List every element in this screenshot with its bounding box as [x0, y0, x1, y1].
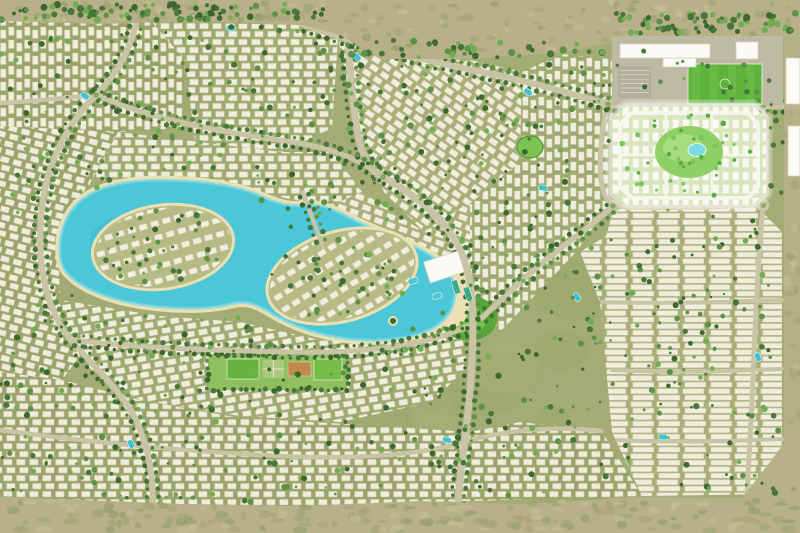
tree-dot: [653, 312, 656, 315]
tree-dot: [90, 371, 94, 375]
tree-dot: [290, 460, 293, 463]
tree-dot: [441, 67, 445, 71]
tree-dot: [364, 143, 368, 147]
tree-dot: [223, 468, 227, 472]
tree-dot: [529, 471, 535, 477]
tree-dot: [494, 295, 499, 300]
tree-dot: [419, 197, 422, 200]
tree-dot: [437, 464, 441, 468]
tree-dot: [138, 415, 143, 420]
tree-dot: [149, 119, 152, 122]
tree-dot: [68, 115, 73, 120]
tree-dot: [164, 77, 167, 80]
tree-dot: [433, 205, 438, 210]
tree-dot: [153, 410, 157, 414]
tree-dot: [346, 125, 352, 131]
tree-dot: [94, 185, 100, 191]
tree-dot: [340, 42, 343, 45]
tree-dot: [391, 38, 396, 43]
tree-dot: [356, 447, 360, 451]
tree-dot: [760, 482, 763, 485]
tree-dot: [328, 355, 333, 360]
scrub-blob: [695, 501, 710, 506]
scrub-blob: [708, 0, 716, 6]
scrub-blob: [104, 503, 114, 510]
tree-dot: [697, 30, 701, 34]
tree-dot: [713, 28, 717, 32]
tree-dot: [760, 272, 766, 278]
tree-dot: [407, 200, 411, 204]
tree-dot: [133, 133, 137, 137]
tree-dot: [476, 350, 481, 355]
tree-dot: [666, 208, 669, 211]
tree-dot: [188, 160, 192, 164]
tree-dot: [44, 369, 50, 375]
tree-dot: [474, 285, 480, 291]
scrub-blob: [440, 20, 445, 25]
tree-dot: [153, 208, 158, 213]
tree-dot: [427, 232, 431, 236]
tree-dot: [288, 283, 294, 289]
tree-dot: [394, 190, 399, 195]
tree-dot: [121, 380, 126, 385]
tree-dot: [116, 53, 120, 57]
tree-dot: [123, 39, 127, 43]
tree-dot: [710, 12, 715, 17]
tree-dot: [167, 111, 171, 115]
tree-dot: [209, 407, 215, 413]
tree-dot: [55, 136, 59, 140]
scrub-blob: [362, 33, 371, 41]
scrub-blob: [557, 500, 568, 504]
tree-dot: [152, 226, 158, 232]
tree-dot: [727, 440, 732, 445]
tree-dot: [186, 92, 191, 97]
tree-dot: [692, 355, 696, 359]
tree-dot: [245, 127, 250, 132]
tree-dot: [68, 383, 72, 387]
tree-dot: [767, 284, 770, 287]
tree-dot: [359, 112, 363, 116]
tree-dot: [34, 207, 38, 211]
tree-dot: [428, 461, 434, 467]
tree-dot: [455, 453, 459, 457]
tree-dot: [192, 110, 197, 115]
tree-dot: [534, 88, 539, 93]
tree-dot: [265, 178, 269, 182]
scrub-blob: [294, 514, 306, 521]
tree-dot: [705, 321, 711, 327]
tree-dot: [324, 141, 330, 147]
tree-dot: [464, 478, 468, 482]
scrub-blob: [331, 521, 337, 527]
tree-dot: [344, 344, 348, 348]
tree-dot: [247, 13, 254, 20]
tree-dot: [368, 351, 373, 356]
tree-dot: [137, 262, 142, 267]
tree-dot: [100, 379, 104, 383]
tree-dot: [620, 12, 625, 17]
scrub-blob: [201, 507, 206, 511]
tree-dot: [162, 249, 165, 252]
tree-dot: [340, 75, 346, 81]
tree-dot: [280, 344, 285, 349]
tree-dot: [347, 115, 350, 118]
tree-dot: [669, 179, 673, 183]
tree-dot: [366, 161, 370, 165]
tree-dot: [450, 223, 455, 228]
scrub-blob: [704, 5, 709, 12]
tree-dot: [789, 28, 793, 32]
tree-dot: [65, 39, 70, 44]
tree-dot: [625, 166, 630, 171]
tree-dot: [308, 108, 312, 112]
scrub-blob: [22, 520, 28, 525]
tree-dot: [594, 286, 597, 289]
tree-dot: [580, 236, 585, 241]
tree-dot: [28, 406, 33, 411]
tree-dot: [440, 212, 443, 215]
tree-dot: [116, 477, 122, 483]
scrub-blob: [396, 9, 408, 14]
tree-dot: [394, 175, 400, 181]
tree-dot: [344, 354, 349, 359]
tree-dot: [725, 134, 729, 138]
tree-dot: [642, 84, 647, 89]
tree-dot: [129, 419, 134, 424]
tree-dot: [761, 406, 767, 412]
tree-dot: [645, 249, 650, 254]
scrub-blob: [710, 518, 718, 523]
tree-dot: [231, 62, 237, 68]
scrub-blob: [533, 21, 542, 25]
scrub-blob: [116, 520, 122, 528]
tree-dot: [299, 386, 303, 390]
tree-dot: [223, 318, 226, 321]
tree-dot: [145, 237, 149, 241]
scrub-blob: [601, 16, 610, 23]
tree-dot: [420, 208, 425, 213]
tree-dot: [24, 147, 27, 150]
tree-dot: [334, 493, 337, 496]
tree-dot: [461, 389, 466, 394]
tree-dot: [161, 446, 163, 448]
scrub-blob: [544, 499, 555, 505]
tree-dot: [102, 148, 105, 151]
tree-dot: [433, 375, 438, 380]
tree-dot: [350, 45, 354, 49]
tree-dot: [451, 45, 456, 50]
tree-dot: [451, 58, 456, 63]
scrub-blob: [135, 523, 142, 529]
tree-dot: [503, 242, 506, 245]
tree-dot: [314, 42, 318, 46]
tree-dot: [401, 65, 404, 68]
tree-dot: [625, 292, 629, 296]
tree-dot: [565, 159, 569, 163]
tree-dot: [341, 370, 346, 375]
tree-dot: [658, 269, 662, 273]
tree-dot: [109, 8, 114, 13]
scrub-blob: [671, 523, 683, 530]
tree-dot: [170, 133, 175, 138]
tree-dot: [460, 321, 463, 324]
tree-dot: [682, 368, 685, 371]
tree-dot: [505, 284, 509, 288]
tree-dot: [455, 434, 461, 440]
masterplan-image: [0, 0, 800, 533]
tree-dot: [534, 106, 537, 109]
tree-dot: [107, 247, 110, 250]
tree-dot: [425, 214, 430, 219]
tree-dot: [216, 353, 221, 358]
tree-dot: [162, 168, 166, 172]
tree-dot: [592, 335, 597, 340]
tree-dot: [115, 381, 119, 385]
school-building: [663, 58, 696, 67]
tree-dot: [44, 462, 47, 465]
tree-dot: [157, 120, 161, 124]
tree-dot: [54, 404, 57, 407]
tree-dot: [535, 215, 538, 218]
tree-dot: [537, 163, 540, 166]
tree-dot: [217, 15, 223, 21]
tree-dot: [580, 223, 583, 226]
tree-dot: [205, 44, 211, 50]
tree-dot: [259, 25, 264, 30]
tree-dot: [688, 162, 691, 165]
tree-dot: [256, 344, 261, 349]
tree-dot: [229, 5, 233, 9]
tree-dot: [59, 388, 64, 393]
tree-dot: [594, 342, 597, 345]
scrub-blob: [104, 526, 115, 532]
tree-dot: [261, 135, 264, 138]
tree-dot: [465, 350, 469, 354]
tree-dot: [273, 448, 279, 454]
tree-dot: [626, 473, 629, 476]
scrub-blob: [480, 527, 490, 531]
tree-dot: [45, 110, 48, 113]
tree-dot: [355, 299, 360, 304]
scrub-blob: [229, 527, 241, 533]
tree-dot: [352, 246, 355, 249]
tree-dot: [229, 24, 234, 29]
tree-dot: [25, 120, 28, 123]
scrub-blob: [547, 46, 556, 51]
tree-dot: [354, 101, 360, 107]
tree-dot: [407, 183, 411, 187]
tree-dot: [589, 245, 594, 250]
tree-dot: [530, 263, 535, 268]
tree-dot: [504, 200, 509, 205]
tree-dot: [75, 462, 78, 465]
scrub-blob: [258, 510, 270, 518]
tree-dot: [732, 143, 735, 146]
tree-dot: [476, 302, 481, 307]
tree-dot: [711, 404, 714, 407]
tree-dot: [543, 266, 547, 270]
tree-dot: [104, 72, 110, 78]
tree-dot: [79, 190, 82, 193]
tree-dot: [465, 311, 469, 315]
tree-dot: [1, 456, 4, 459]
tree-dot: [497, 39, 503, 45]
tree-dot: [300, 202, 306, 208]
tree-dot: [164, 324, 168, 328]
tree-dot: [688, 341, 693, 346]
tree-dot: [594, 273, 600, 279]
tree-dot: [229, 124, 234, 129]
highlight-parcel: [612, 106, 766, 205]
tree-dot: [206, 121, 210, 125]
tree-dot: [635, 182, 639, 186]
tree-dot: [730, 476, 734, 480]
tree-dot: [16, 211, 20, 215]
tree-dot: [245, 329, 249, 333]
tree-dot: [456, 334, 461, 339]
tree-dot: [257, 181, 260, 184]
tree-dot: [470, 132, 474, 136]
tree-dot: [525, 122, 531, 128]
scrub-blob: [406, 28, 412, 32]
tree-dot: [151, 68, 154, 71]
tree-dot: [586, 217, 590, 221]
tree-dot: [446, 229, 449, 232]
tree-dot: [500, 289, 505, 294]
tree-dot: [181, 61, 185, 65]
tree-dot: [464, 424, 468, 428]
tree-dot: [28, 41, 33, 46]
tree-dot: [592, 92, 596, 96]
tree-dot: [669, 352, 672, 355]
tree-dot: [700, 62, 703, 65]
tree-dot: [159, 111, 163, 115]
tree-dot: [574, 42, 579, 47]
tree-dot: [506, 124, 509, 127]
tree-dot: [720, 314, 725, 319]
tree-dot: [198, 448, 202, 452]
tree-dot: [607, 139, 611, 143]
tree-dot: [542, 490, 545, 493]
tree-dot: [8, 87, 13, 92]
tree-dot: [438, 206, 442, 210]
tree-dot: [470, 111, 475, 116]
tree-dot: [742, 307, 746, 311]
tree-dot: [670, 238, 675, 243]
tree-dot: [443, 108, 449, 114]
tree-dot: [224, 342, 229, 347]
scrub-blob: [786, 419, 794, 423]
tree-dot: [182, 331, 188, 337]
tree-dot: [473, 407, 477, 411]
tree-dot: [45, 382, 47, 384]
tree-dot: [542, 41, 546, 45]
tree-dot: [366, 251, 372, 257]
tree-dot: [459, 413, 464, 418]
tree-dot: [557, 120, 562, 125]
tree-dot: [263, 456, 266, 459]
tree-dot: [552, 335, 557, 340]
tree-dot: [345, 374, 351, 380]
tree-dot: [366, 293, 369, 296]
scrub-blob: [504, 20, 508, 26]
tree-dot: [404, 431, 408, 435]
field-stripe: [728, 66, 736, 102]
tree-dot: [387, 350, 392, 355]
tree-dot: [346, 368, 351, 373]
tree-dot: [313, 356, 317, 360]
tree-dot: [200, 318, 203, 321]
tree-dot: [706, 114, 710, 118]
tree-dot: [333, 144, 337, 148]
tree-dot: [588, 318, 594, 324]
tree-dot: [473, 390, 478, 395]
tree-dot: [103, 13, 109, 19]
tree-dot: [533, 124, 538, 129]
tree-dot: [750, 218, 755, 223]
tree-dot: [107, 388, 111, 392]
tree-dot: [518, 92, 524, 98]
tree-dot: [475, 174, 479, 178]
tree-dot: [528, 137, 531, 140]
tree-dot: [323, 237, 327, 241]
tree-dot: [574, 227, 578, 231]
scrub-blob: [533, 7, 545, 12]
tree-dot: [309, 121, 315, 127]
tree-dot: [138, 448, 143, 453]
tree-dot: [165, 496, 168, 499]
tree-dot: [567, 232, 572, 237]
scrub-blob: [389, 513, 399, 518]
tree-dot: [296, 355, 301, 360]
scrub-blob: [614, 31, 622, 35]
scrub-blob: [613, 502, 623, 505]
tree-dot: [559, 408, 564, 413]
tree-dot: [58, 332, 62, 336]
tree-dot: [141, 456, 146, 461]
tree-dot: [143, 4, 147, 8]
tree-dot: [109, 39, 113, 43]
tree-dot: [83, 456, 88, 461]
tree-dot: [69, 134, 74, 139]
tree-dot: [378, 132, 384, 138]
scrub-blob: [57, 499, 65, 504]
scrub-blob: [432, 502, 438, 507]
tree-dot: [217, 392, 223, 398]
tree-dot: [87, 110, 91, 114]
tree-dot: [113, 337, 117, 341]
tree-dot: [432, 341, 437, 346]
roundabout-island: [93, 92, 99, 98]
tree-dot: [666, 383, 671, 388]
tree-dot: [351, 139, 355, 143]
tree-dot: [530, 48, 535, 53]
tree-dot: [348, 150, 352, 154]
tree-dot: [568, 246, 572, 250]
tree-dot: [268, 341, 274, 347]
tree-dot: [49, 38, 53, 42]
tree-dot: [477, 312, 481, 316]
tree-dot: [656, 18, 662, 24]
swimming-pool: [658, 434, 667, 440]
tree-dot: [120, 33, 123, 36]
tree-dot: [140, 10, 146, 16]
tree-dot: [100, 363, 103, 366]
tree-dot: [635, 132, 640, 137]
tree-dot: [653, 119, 656, 122]
scrub-blob: [455, 7, 460, 10]
